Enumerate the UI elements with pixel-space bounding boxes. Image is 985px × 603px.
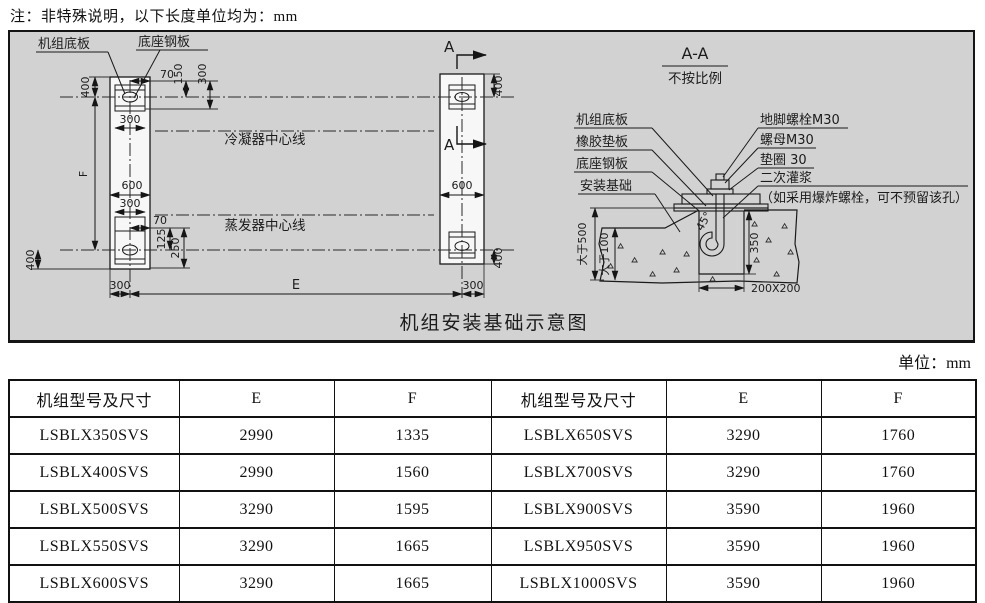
dim-E: E bbox=[292, 278, 300, 293]
dim-300-bottom-right: 300 bbox=[463, 279, 484, 292]
header-model-right: 机组型号及尺寸 bbox=[491, 380, 666, 417]
dim-min500: 大于500 bbox=[575, 223, 589, 266]
section-marker-a-bottom: A bbox=[444, 136, 455, 154]
base-steel-plate-label-plan: 底座钢板 bbox=[138, 34, 190, 50]
f-cell: 1335 bbox=[334, 417, 491, 454]
dim-200x200: 200X200 bbox=[751, 282, 801, 295]
unit-base-plate-label-plan: 机组底板 bbox=[38, 36, 90, 52]
table-header-row: 机组型号及尺寸 E F 机组型号及尺寸 E F bbox=[9, 380, 976, 417]
base-steel-plate-label-section: 底座钢板 bbox=[576, 156, 628, 172]
f-cell: 1960 bbox=[821, 565, 976, 602]
dim-125: 125 bbox=[155, 229, 168, 250]
condenser-centerline-label: 冷凝器中心线 bbox=[225, 132, 306, 148]
table-row: LSBLX400SVS 2990 1560 LSBLX700SVS 3290 1… bbox=[9, 454, 976, 491]
grouting-note: （如采用爆炸螺栓，可不预留该孔） bbox=[760, 190, 968, 206]
dim-250: 250 bbox=[169, 238, 182, 259]
foundation-diagram-svg: 冷凝器中心线 蒸发器中心线 400 F bbox=[10, 32, 973, 340]
f-cell: 1665 bbox=[334, 565, 491, 602]
foundation-diagram: 冷凝器中心线 蒸发器中心线 400 F bbox=[8, 30, 975, 343]
model-cell: LSBLX950SVS bbox=[491, 528, 666, 565]
header-e-right: E bbox=[666, 380, 821, 417]
diagram-caption: 机组安装基础示意图 bbox=[399, 312, 588, 334]
e-cell: 3590 bbox=[666, 491, 821, 528]
dimension-lines bbox=[38, 74, 494, 294]
model-cell: LSBLX400SVS bbox=[9, 454, 179, 491]
table-row: LSBLX350SVS 2990 1335 LSBLX650SVS 3290 1… bbox=[9, 417, 976, 454]
dim-300-bottom-plate: 300 bbox=[120, 197, 141, 210]
e-cell: 3290 bbox=[179, 491, 334, 528]
washer-label: 垫圈 30 bbox=[760, 152, 807, 168]
dim-600-left: 600 bbox=[122, 179, 143, 192]
e-cell: 3290 bbox=[666, 417, 821, 454]
dimension-table: 机组型号及尺寸 E F 机组型号及尺寸 E F LSBLX350SVS 2990… bbox=[8, 379, 977, 603]
rubber-pad-label: 橡胶垫板 bbox=[576, 134, 628, 150]
model-cell: LSBLX700SVS bbox=[491, 454, 666, 491]
dim-600-right: 600 bbox=[452, 179, 473, 192]
dim-F: F bbox=[77, 171, 90, 177]
header-f-left: F bbox=[334, 380, 491, 417]
f-cell: 1760 bbox=[821, 417, 976, 454]
f-cell: 1560 bbox=[334, 454, 491, 491]
dim-400-top-left: 400 bbox=[79, 77, 92, 98]
unit-base-plate-label-section: 机组底板 bbox=[576, 112, 628, 128]
model-cell: LSBLX900SVS bbox=[491, 491, 666, 528]
e-cell: 3290 bbox=[179, 565, 334, 602]
dim-300-top: 300 bbox=[196, 64, 209, 85]
e-cell: 3290 bbox=[666, 454, 821, 491]
nut-label: 螺母M30 bbox=[760, 133, 814, 148]
table-row: LSBLX550SVS 3290 1665 LSBLX950SVS 3590 1… bbox=[9, 528, 976, 565]
f-cell: 1760 bbox=[821, 454, 976, 491]
table-row: LSBLX500SVS 3290 1595 LSBLX900SVS 3590 1… bbox=[9, 491, 976, 528]
evaporator-centerline-label: 蒸发器中心线 bbox=[225, 218, 306, 234]
f-cell: 1960 bbox=[821, 491, 976, 528]
table-unit-label: 单位：mm bbox=[0, 343, 985, 377]
dim-300-bottom-left: 300 bbox=[110, 279, 131, 292]
f-cell: 1665 bbox=[334, 528, 491, 565]
f-cell: 1960 bbox=[821, 528, 976, 565]
plan-dimension-labels: 400 F 400 70 150 300 300 600 300 70 125 … bbox=[24, 64, 505, 294]
header-e-left: E bbox=[179, 380, 334, 417]
model-cell: LSBLX1000SVS bbox=[491, 565, 666, 602]
units-note: 注：非特殊说明，以下长度单位均为：mm bbox=[0, 0, 985, 30]
e-cell: 3590 bbox=[666, 565, 821, 602]
e-cell: 3590 bbox=[666, 528, 821, 565]
extension-lines bbox=[32, 74, 500, 298]
grouting-label: 二次灌浆 bbox=[760, 170, 812, 186]
model-cell: LSBLX550SVS bbox=[9, 528, 179, 565]
not-to-scale-label: 不按比例 bbox=[668, 71, 722, 87]
section-title: A-A bbox=[682, 44, 709, 63]
dim-400-bottom-left: 400 bbox=[24, 250, 37, 271]
model-cell: LSBLX350SVS bbox=[9, 417, 179, 454]
e-cell: 2990 bbox=[179, 454, 334, 491]
model-cell: LSBLX500SVS bbox=[9, 491, 179, 528]
dim-350: 350 bbox=[748, 233, 761, 254]
table-row: LSBLX600SVS 3290 1665 LSBLX1000SVS 3590 … bbox=[9, 565, 976, 602]
dim-150: 150 bbox=[172, 64, 185, 85]
model-cell: LSBLX650SVS bbox=[491, 417, 666, 454]
e-cell: 2990 bbox=[179, 417, 334, 454]
header-model-left: 机组型号及尺寸 bbox=[9, 380, 179, 417]
anchor-bolt-label: 地脚螺栓M30 bbox=[760, 112, 840, 128]
e-cell: 3290 bbox=[179, 528, 334, 565]
dim-400-bottom-right: 400 bbox=[492, 248, 505, 269]
section-marker-a-top: A bbox=[444, 38, 455, 56]
dim-min100: 大于100 bbox=[597, 233, 611, 276]
dim-45deg: 45° bbox=[693, 210, 714, 233]
rubber-pad-shape bbox=[674, 204, 768, 208]
dim-400-top-right: 400 bbox=[492, 76, 505, 97]
dim-70-bottom: 70 bbox=[153, 214, 167, 227]
bolt-tip bbox=[716, 174, 724, 180]
foundation-label: 安装基础 bbox=[580, 179, 632, 194]
f-cell: 1595 bbox=[334, 491, 491, 528]
dim-300-plate-width: 300 bbox=[120, 113, 141, 126]
header-f-right: F bbox=[821, 380, 976, 417]
model-cell: LSBLX600SVS bbox=[9, 565, 179, 602]
